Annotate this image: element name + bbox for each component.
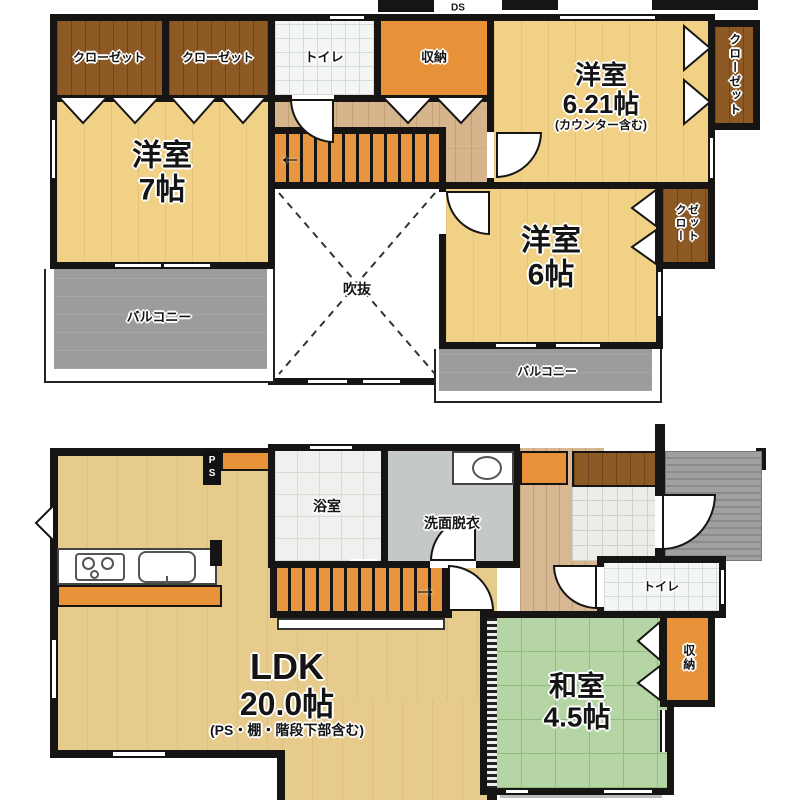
stair-direction-arrow: → xyxy=(413,575,437,603)
window xyxy=(50,120,57,178)
washbasin-icon xyxy=(472,456,502,480)
closet-label: クローゼット xyxy=(727,33,740,117)
wall xyxy=(50,750,285,758)
wall xyxy=(277,750,285,800)
door-gap xyxy=(439,192,446,234)
window xyxy=(506,788,528,795)
toilet-label: トイレ xyxy=(643,580,679,593)
storage-label: 収納 xyxy=(421,51,447,66)
wall-stub xyxy=(210,540,222,566)
room621-label: 洋室 6.21帖 (カウンター含む) xyxy=(555,61,647,133)
window xyxy=(604,788,652,795)
bifold-door-icon xyxy=(682,24,712,128)
window xyxy=(113,750,165,758)
fusuma-track xyxy=(487,618,497,788)
bifold-door-icon xyxy=(169,95,268,125)
room7-label: 洋室7帖 xyxy=(132,139,192,206)
door-gap xyxy=(487,132,494,178)
window xyxy=(656,272,663,316)
window xyxy=(363,378,400,385)
window xyxy=(308,378,347,385)
window xyxy=(556,342,600,349)
ldk-label: LDK 20.0帖 (PS・棚・階段下部含む) xyxy=(210,647,364,739)
storage-label: 収納 xyxy=(681,644,694,672)
bay-window-icon xyxy=(34,503,56,543)
door-gap xyxy=(597,567,604,607)
floor-plan: DS xyxy=(0,0,800,800)
bath-label: 浴室 xyxy=(313,499,341,515)
bifold-door-icon xyxy=(630,188,658,266)
japanese-room-label: 和室4.5帖 xyxy=(544,671,611,734)
kitchen-base xyxy=(57,585,222,607)
balcony-label: バルコニー xyxy=(127,311,192,326)
faucet-icon xyxy=(166,576,168,584)
bifold-door-icon xyxy=(57,95,162,125)
void-label: 吹抜 xyxy=(343,282,371,298)
washroom-label: 洗面脱衣 xyxy=(424,516,480,532)
window xyxy=(330,14,364,21)
balcony-2f-left xyxy=(44,269,275,383)
wall-stub xyxy=(652,0,758,10)
duct-space-label: DS xyxy=(451,2,465,13)
closet-label: クローゼット xyxy=(674,204,699,246)
toilet-label: トイレ xyxy=(304,51,343,66)
room6-label: 洋室6帖 xyxy=(521,224,581,291)
window xyxy=(708,138,715,178)
window xyxy=(560,14,655,21)
window xyxy=(496,342,536,349)
bifold-door-icon xyxy=(636,620,662,702)
burner-icon xyxy=(101,557,114,570)
burner-icon xyxy=(82,557,95,570)
pipe-space-label: PS xyxy=(206,455,217,481)
under-stair-counter xyxy=(277,618,445,630)
closet-label: クローゼット xyxy=(182,51,254,64)
window xyxy=(50,640,58,698)
shelf xyxy=(221,451,273,471)
shoe-cabinet xyxy=(572,451,657,487)
window xyxy=(164,262,210,269)
wall-stub xyxy=(502,0,558,10)
window xyxy=(115,262,161,269)
closet-label: クローゼット xyxy=(73,51,145,64)
balcony-label: バルコニー xyxy=(517,365,577,378)
entry-tile xyxy=(572,487,657,561)
stair-direction-arrow: ← xyxy=(278,143,302,171)
wall-stub xyxy=(378,0,434,12)
bifold-door-icon xyxy=(381,95,487,125)
window xyxy=(310,444,352,451)
hall-cabinet xyxy=(520,451,568,485)
window xyxy=(719,570,726,604)
veranda-edge xyxy=(500,795,662,798)
burner-icon xyxy=(90,570,99,579)
window xyxy=(660,710,667,752)
pipe-space: PS xyxy=(203,451,221,485)
